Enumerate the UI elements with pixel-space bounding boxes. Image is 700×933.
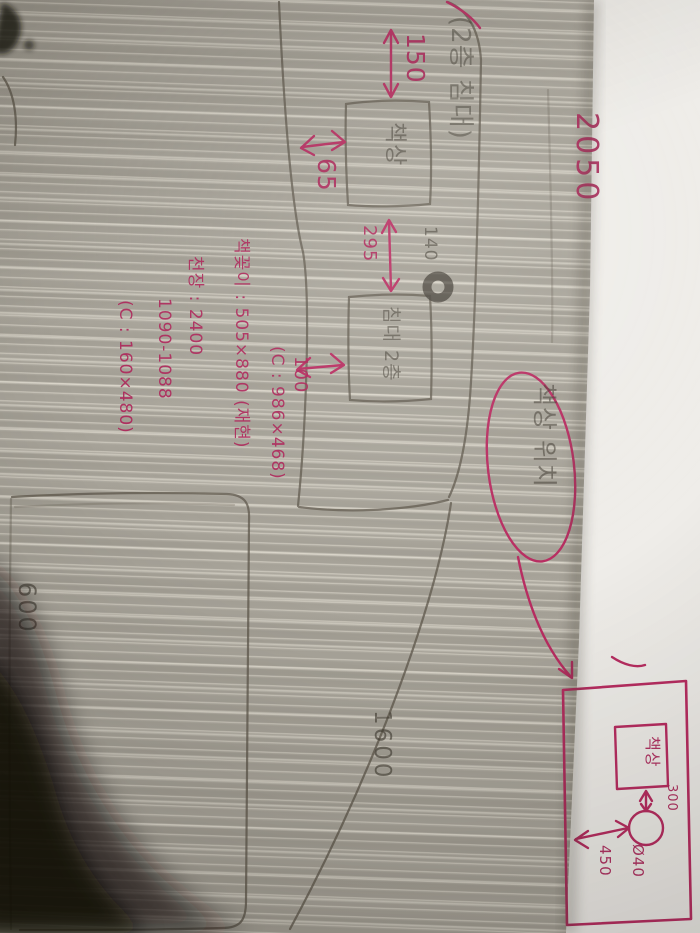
dim-450-label: 450 (597, 845, 612, 877)
note-right-line-2: 책꽂이 : 505×880 (재현) (232, 238, 249, 449)
dim-140-label: 140 (421, 226, 438, 261)
dim-100-label: 100 (291, 356, 309, 393)
note-right-line-1: (C : 986×468) (268, 346, 285, 480)
stool-diameter-label: Ø40 (630, 844, 645, 878)
dim-300-label: 300 (665, 784, 678, 812)
note-left-line-3: (C : 160×480) (116, 300, 133, 434)
oval-note-label: 책상 위치 (532, 383, 557, 488)
note-left-line-1: 천장 : 2400 (186, 256, 203, 356)
dim-600-label: 600 (15, 582, 39, 634)
dim-65-label: 65 (314, 158, 339, 192)
notebook-sketch-photo: 150 65 295 100 2050 140 1600 600 (2층 침대)… (0, 0, 700, 933)
ladder-box-label: 침대 2층 (381, 306, 400, 382)
dim-295-label: 295 (360, 225, 378, 262)
bed-note-label: (2층 침대) (447, 16, 473, 140)
dim-1600-label: 1600 (370, 710, 393, 781)
dim-150-label: 150 (403, 33, 428, 84)
desk-box-label: 책상 (383, 122, 406, 166)
note-left-line-2: 1090-1088 (155, 298, 172, 400)
dim-2050-label: 2050 (571, 112, 601, 204)
detail-desk-label: 책상 (644, 736, 660, 767)
